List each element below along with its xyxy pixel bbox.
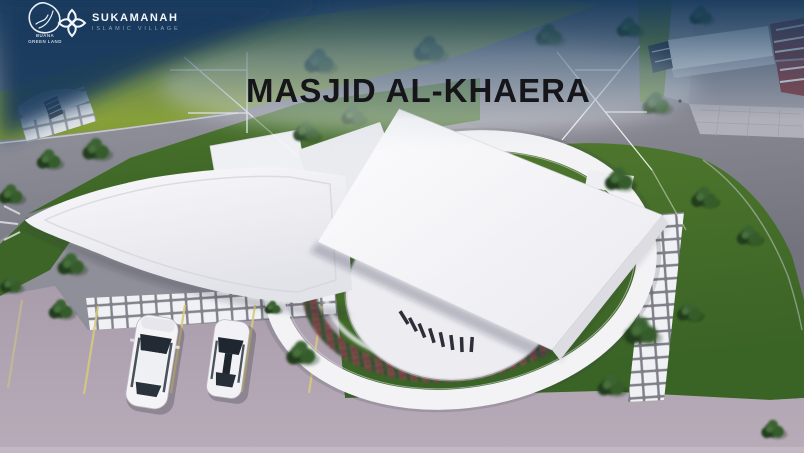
page-title: MASJID AL-KHAERA xyxy=(246,72,591,110)
architectural-render xyxy=(0,0,804,453)
brand-name: SUKAMANAH xyxy=(92,12,180,24)
brand-tagline: ISLAMIC VILLAGE xyxy=(92,26,180,32)
brand-text: SUKAMANAH ISLAMIC VILLAGE xyxy=(92,12,180,32)
header-brand-area: BUANA GREEN LAND SUKAMANAH ISLAMIC VILLA… xyxy=(0,0,240,50)
bottom-edge-strip xyxy=(0,447,804,453)
knot-logo-icon xyxy=(57,8,87,40)
presentation-slide: BUANA GREEN LAND SUKAMANAH ISLAMIC VILLA… xyxy=(0,0,804,453)
